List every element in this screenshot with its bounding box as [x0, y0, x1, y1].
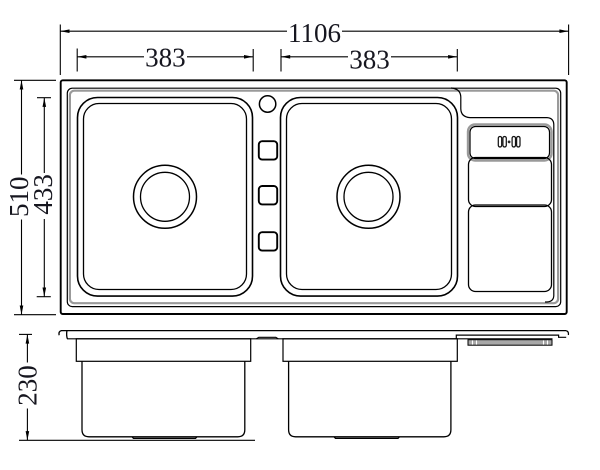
svg-text:230: 230: [13, 365, 43, 406]
svg-text:433: 433: [28, 174, 58, 215]
svg-text:383: 383: [349, 45, 390, 75]
svg-text:1106: 1106: [288, 18, 341, 48]
svg-text:383: 383: [145, 43, 186, 73]
